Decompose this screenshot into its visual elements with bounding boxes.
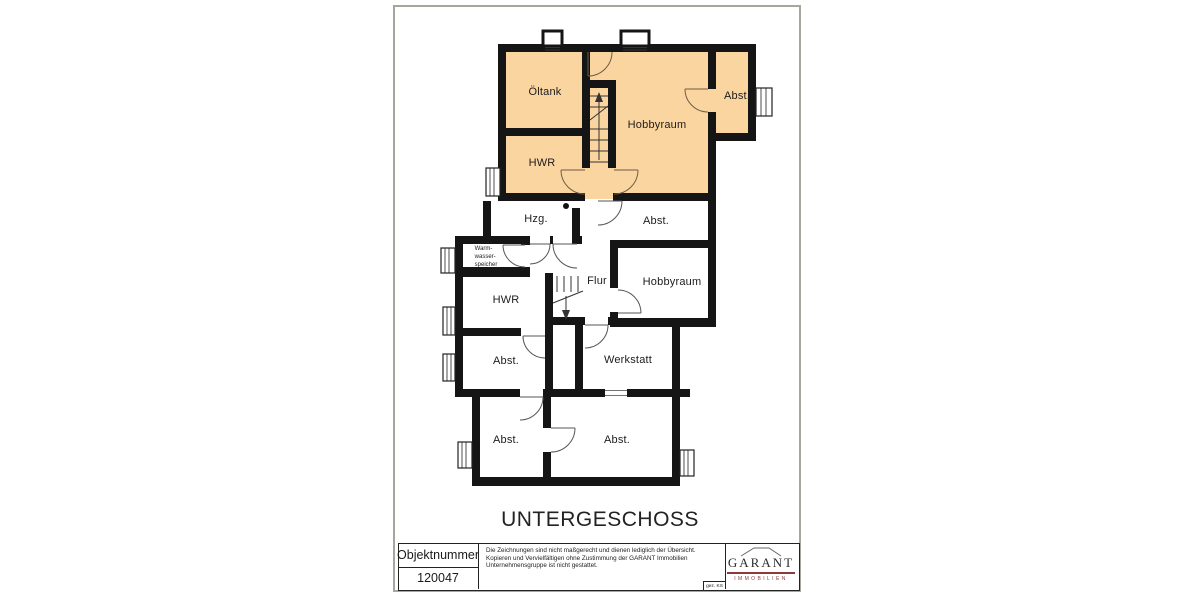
wws-line-1: Warm-: [475, 245, 498, 253]
object-number-label: Objektnummer: [398, 543, 478, 567]
room-label-hwr-lower: HWR: [493, 294, 520, 306]
disclaimer-text: Die Zeichnungen sind nicht maßgerecht un…: [486, 547, 718, 570]
logo-subtitle: IMMOBILIEN: [727, 576, 795, 582]
title-block-divider-2: [725, 543, 726, 589]
room-label-oeltank: Öltank: [529, 86, 562, 98]
room-label-abst-bottom-right: Abst.: [604, 434, 630, 446]
logo-rule: [727, 572, 795, 574]
signature-box: gez. KS: [703, 581, 725, 590]
disclaimer-line-1: Die Zeichnungen sind nicht maßgerecht un…: [486, 547, 718, 555]
column-dot: [563, 203, 569, 209]
room-label-hzg: Hzg.: [524, 213, 547, 225]
wws-line-3: speicher: [475, 261, 498, 269]
room-label-flur: Flur: [587, 275, 607, 287]
room-label-hwr-upper: HWR: [529, 157, 556, 169]
disclaimer-line-2: Kopieren und Vervielfältigen ohne Zustim…: [486, 555, 718, 563]
screenshot-root: Öltank Hobbyraum Abst. HWR Hzg. Abst. Wa…: [0, 0, 1200, 600]
floor-title: UNTERGESCHOSS: [501, 508, 699, 532]
garant-logo: GARANT IMMOBILIEN: [727, 546, 795, 582]
logo-name: GARANT: [727, 555, 795, 571]
room-label-warmwasserspeicher: Warm- wasser- speicher: [475, 245, 498, 269]
disclaimer-line-3: Unternehmensgruppe ist nicht gestattet.: [486, 562, 718, 570]
room-label-abst-mid-left: Abst.: [493, 355, 519, 367]
chimney-icon: [543, 31, 649, 46]
staircase-lower: [553, 276, 583, 312]
room-label-abst-upper: Abst.: [724, 90, 750, 102]
room-label-hobbyraum-upper: Hobbyraum: [628, 119, 687, 131]
room-label-abst-middle: Abst.: [643, 215, 669, 227]
room-label-werkstatt: Werkstatt: [604, 354, 652, 366]
object-number-value: 120047: [398, 567, 478, 589]
wws-line-2: wasser-: [475, 253, 498, 261]
wall-opening: [605, 391, 627, 396]
room-label-hobbyraum-lower: Hobbyraum: [643, 276, 702, 288]
room-label-abst-bottom-left: Abst.: [493, 434, 519, 446]
